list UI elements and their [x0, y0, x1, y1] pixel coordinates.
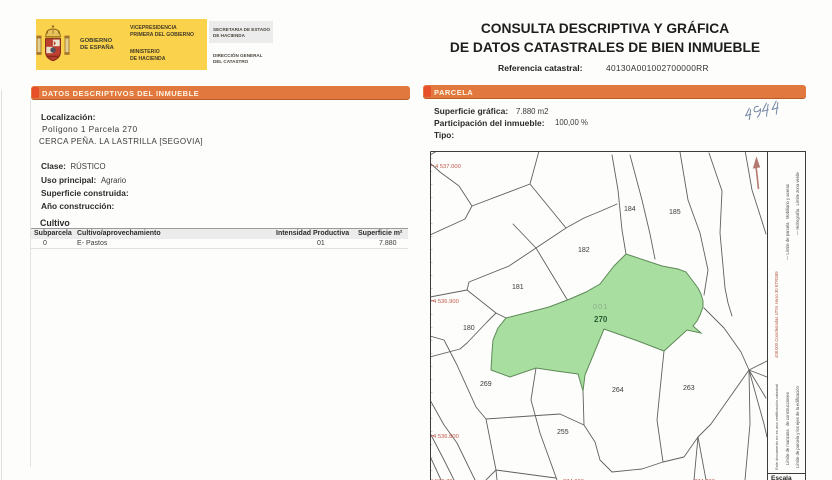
svg-text:269: 269	[480, 381, 492, 388]
svg-text:Límite de manzana de constru: Límite de manzana de construcciones	[785, 392, 790, 465]
svg-text:184: 184	[624, 206, 636, 213]
svg-text:Límite de parcela y los ejes d: Límite de parcela y los ejes de la edifi…	[795, 385, 800, 468]
svg-text:185: 185	[669, 209, 681, 216]
svg-text:264: 264	[612, 387, 624, 394]
svg-text:255: 255	[557, 429, 569, 436]
svg-text:263: 263	[683, 385, 695, 392]
svg-text:— Límite de parcela Mobiliar: — Límite de parcela Mobiliario y aceras	[785, 184, 790, 260]
svg-text:4 536.900: 4 536.900	[433, 299, 459, 305]
svg-text:180: 180	[463, 325, 475, 332]
svg-text:181: 181	[512, 284, 524, 291]
svg-text:— Hidrografía Límite zona ve: — Hidrografía Límite zona verde	[795, 171, 800, 235]
svg-text:Escala: Escala	[771, 475, 792, 480]
svg-text:4 537.000: 4 537.000	[435, 164, 461, 170]
svg-text:270: 270	[594, 315, 608, 324]
svg-text:182: 182	[578, 247, 590, 254]
svg-text:4 536.800: 4 536.800	[433, 434, 459, 440]
svg-text:408.000 Coordenadas UTM. Huso: 408.000 Coordenadas UTM. Huso 30 ETRS89	[774, 271, 779, 358]
svg-text:Este documento no es una certi: Este documento no es una certificación c…	[774, 384, 779, 470]
svg-text:001: 001	[593, 302, 609, 311]
